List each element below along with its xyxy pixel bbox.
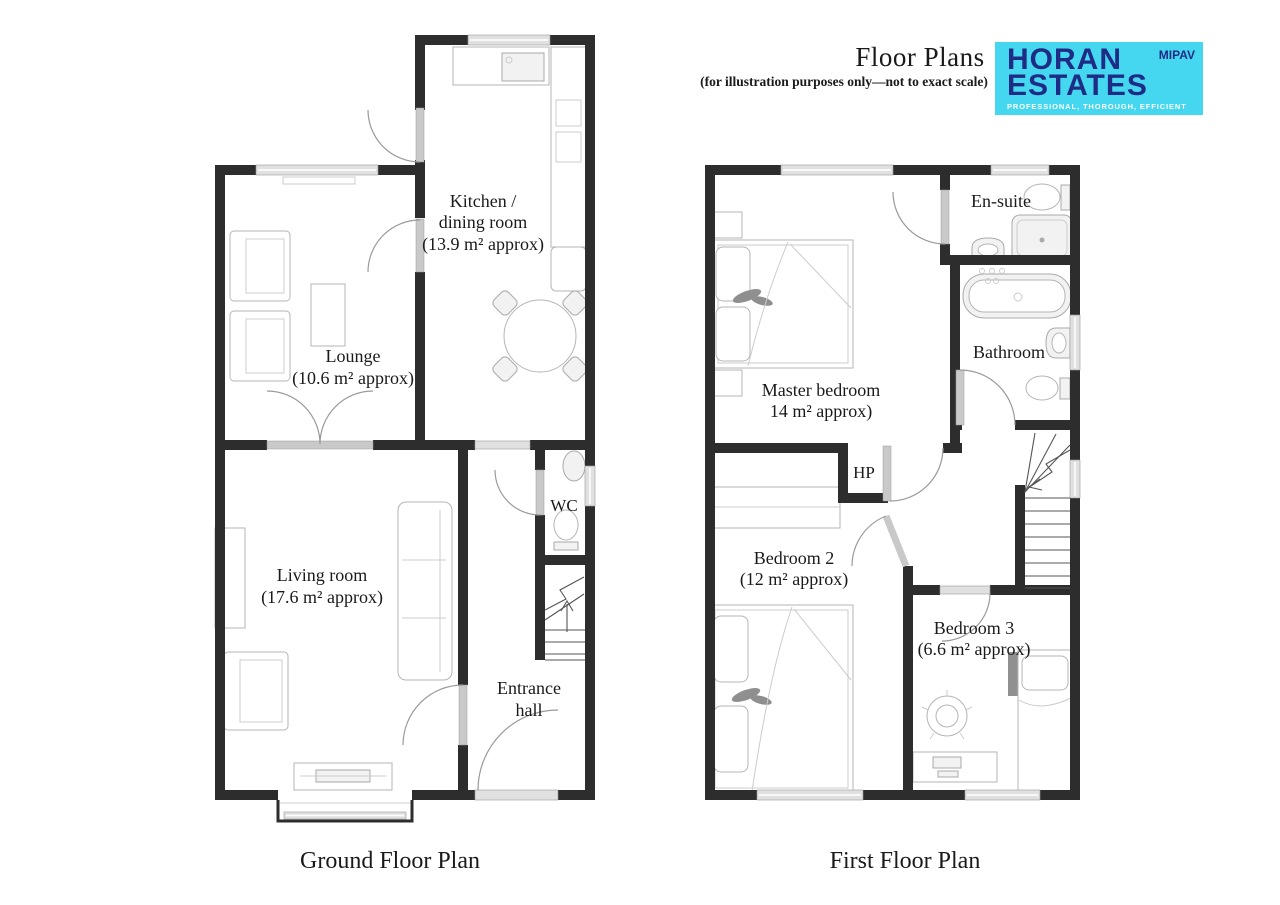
room-label-entrance-hall: Entrance	[497, 678, 561, 698]
front-door-sill	[475, 790, 558, 800]
kitchen-hall-opening	[475, 441, 530, 449]
svg-text:(12 m² approx): (12 m² approx)	[740, 569, 848, 590]
ensuite-door-arc	[893, 192, 945, 244]
room-label-bedroom-2: Bedroom 2	[754, 548, 835, 568]
room-label-living-room: Living room	[277, 565, 368, 585]
living-hall-door-leaf	[459, 685, 467, 745]
lounge-double-door-arc-left	[267, 391, 320, 444]
bay-window	[278, 800, 412, 821]
front-door-arc	[478, 710, 558, 790]
room-label-wc: WC	[550, 496, 577, 515]
svg-text:(17.6 m² approx): (17.6 m² approx)	[261, 587, 383, 608]
pillow	[716, 307, 750, 361]
living-hall-door-arc	[403, 685, 463, 745]
master-bed	[713, 240, 853, 368]
ground-floor-title: Ground Floor Plan	[300, 848, 480, 874]
pillow	[714, 706, 748, 772]
keyboard	[938, 771, 958, 777]
svg-text:(10.6 m² approx): (10.6 m² approx)	[292, 368, 414, 389]
bedroom2-bed	[710, 605, 853, 793]
first-floor-title: First Floor Plan	[830, 848, 981, 874]
bedroom3-door-sill	[940, 586, 990, 594]
room-label-master-bedroom: Master bedroom	[762, 380, 880, 400]
lounge-kitchen-door-arc	[368, 220, 420, 272]
lounge-armchair-2	[230, 311, 290, 381]
floor-plan-sheet: Floor Plans (for illustration purposes o…	[0, 0, 1280, 905]
bedroom2-door-leaf	[886, 516, 906, 566]
first-floor-stairs	[1025, 433, 1070, 588]
ground-floor-windows	[256, 35, 595, 821]
bathroom-fixtures	[963, 269, 1071, 401]
pillow	[1022, 656, 1068, 690]
wc-sink	[563, 451, 585, 481]
svg-text:dining room: dining room	[439, 212, 528, 232]
wc-door-leaf	[536, 470, 544, 515]
bedroom2-door-arc	[852, 516, 886, 566]
dining-table	[504, 300, 576, 372]
living-armchair	[224, 652, 288, 730]
lounge-double-door-arc-right	[320, 391, 373, 444]
svg-text:14 m² approx): 14 m² approx)	[770, 401, 872, 422]
room-label-lounge: Lounge	[326, 346, 381, 366]
kitchen-appliance	[551, 247, 586, 291]
master-door-arc	[890, 448, 943, 501]
svg-text:(6.6 m² approx): (6.6 m² approx)	[918, 639, 1031, 660]
lounge-coffee-table	[311, 284, 345, 346]
plan-canvas: Kitchen / dining room (13.9 m² approx) L…	[0, 0, 1280, 905]
room-label-hp: HP	[853, 463, 875, 482]
room-label-bathroom: Bathroom	[973, 342, 1045, 362]
living-sofa	[398, 502, 452, 680]
bathroom-door-leaf	[956, 370, 964, 425]
room-label-bedroom-3: Bedroom 3	[934, 618, 1015, 638]
bedroom3-bed	[1018, 650, 1072, 793]
wc-door-arc	[495, 470, 540, 515]
desk-chair	[922, 690, 972, 739]
svg-text:(13.9 m² approx): (13.9 m² approx)	[422, 234, 544, 255]
room-label-en-suite: En-suite	[971, 191, 1031, 211]
bathroom-door-arc	[960, 370, 1015, 425]
pillow	[714, 616, 748, 682]
master-door-leaf	[883, 446, 891, 501]
room-label-kitchen: Kitchen /	[450, 191, 516, 211]
ground-floor-plan: Kitchen / dining room (13.9 m² approx) L…	[215, 35, 595, 874]
bathroom-toilet	[1026, 376, 1058, 400]
back-door-arc	[368, 110, 420, 162]
ensuite-cistern	[1061, 185, 1070, 210]
first-floor-plan: Master bedroom 14 m² approx) En-suite Ba…	[705, 165, 1080, 874]
lounge-radiator	[283, 177, 355, 184]
wc-toilet-base	[554, 542, 578, 550]
svg-text:hall: hall	[516, 700, 543, 720]
ensuite-door-leaf	[941, 190, 949, 244]
monitor	[933, 757, 961, 768]
bathroom-cistern	[1060, 378, 1070, 399]
back-door-leaf	[416, 108, 424, 162]
lounge-armchair-1	[230, 231, 290, 301]
ground-floor-stairs	[545, 577, 585, 660]
